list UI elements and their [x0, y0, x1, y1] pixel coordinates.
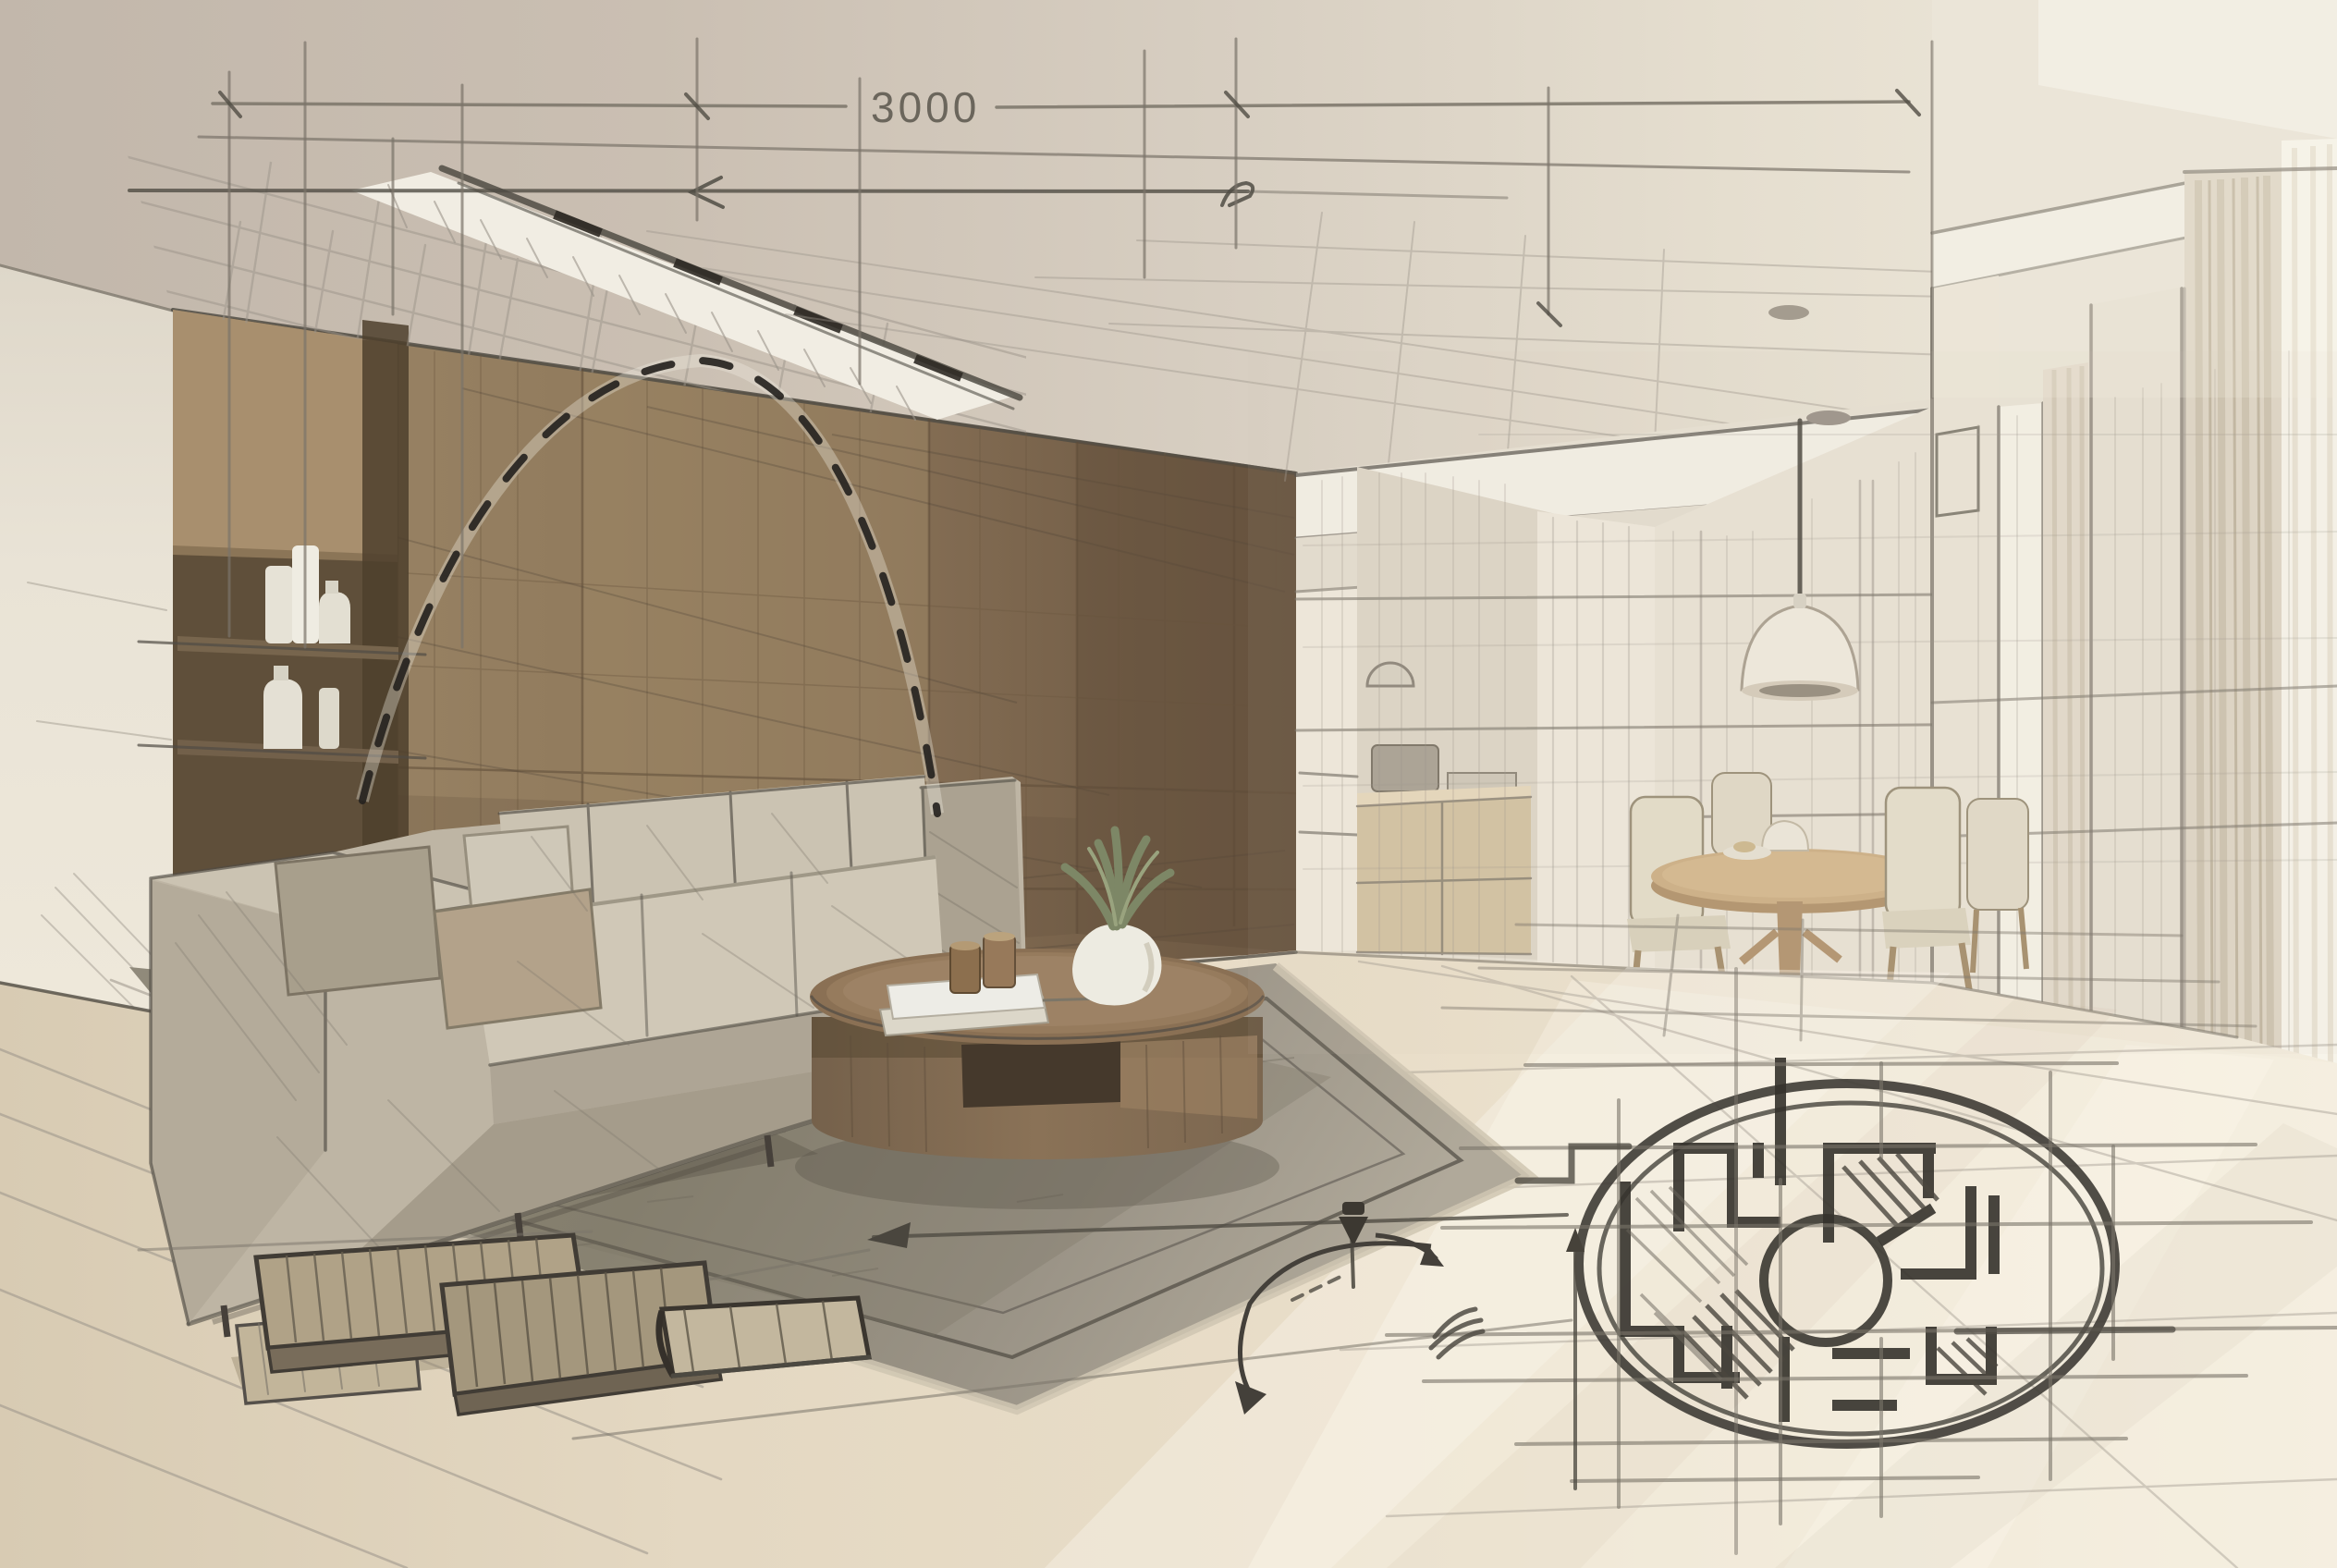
svg-text:3000: 3000	[871, 83, 980, 131]
